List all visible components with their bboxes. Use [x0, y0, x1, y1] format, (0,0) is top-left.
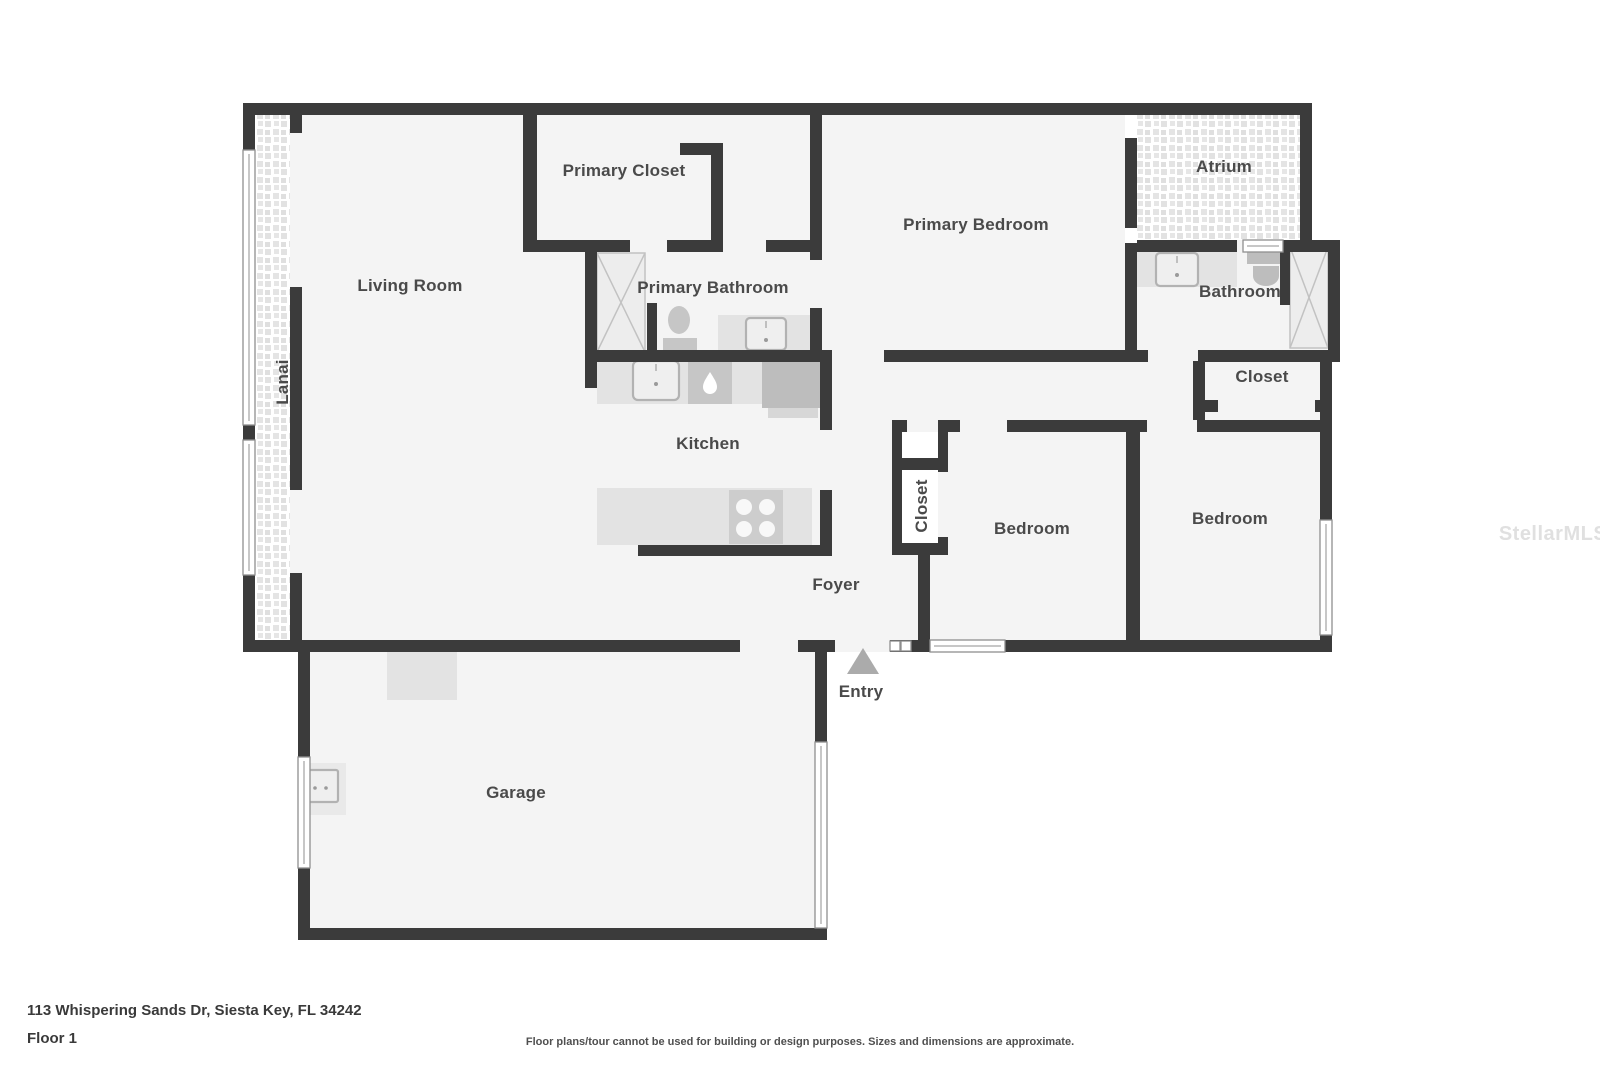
shower-icon — [597, 253, 645, 352]
garage-label: Garage — [486, 783, 546, 802]
bedroom-closet-label: Closet — [912, 479, 931, 532]
lanai-label: Lanai — [273, 359, 292, 404]
property-address: 113 Whispering Sands Dr, Siesta Key, FL … — [27, 1002, 362, 1019]
vanity-sink-icon — [718, 315, 810, 353]
kitchen-label: Kitchen — [676, 434, 740, 453]
shower-icon — [1290, 247, 1328, 348]
dishwasher-icon — [688, 360, 732, 404]
atrium-label: Atrium — [1196, 157, 1252, 176]
living-room-label: Living Room — [357, 276, 462, 295]
bedroom-right-label: Bedroom — [1192, 509, 1268, 528]
floor-plan-drawing: Living Room Lanai Primary Closet Primary… — [0, 0, 1600, 1066]
primary-closet-label: Primary Closet — [563, 161, 686, 180]
bedroom-middle-label: Bedroom — [994, 519, 1070, 538]
disclaimer-text: Floor plans/tour cannot be used for buil… — [0, 1036, 1600, 1048]
foyer-label: Foyer — [812, 575, 859, 594]
atrium-tile-area — [1137, 115, 1300, 240]
entry-label: Entry — [839, 682, 884, 701]
stellar-mls-watermark: StellarMLS — [1499, 523, 1600, 545]
primary-bedroom-label: Primary Bedroom — [903, 215, 1049, 234]
hall-closet-label: Closet — [1235, 367, 1288, 386]
floor-plan-page: Living Room Lanai Primary Closet Primary… — [0, 0, 1600, 1066]
stove-icon — [729, 490, 783, 544]
refrigerator-icon — [762, 356, 824, 418]
primary-bathroom-label: Primary Bathroom — [637, 278, 789, 297]
kitchen-sink-icon — [633, 361, 679, 400]
garage-storage-pad — [387, 652, 457, 700]
bathroom-label: Bathroom — [1199, 282, 1281, 301]
